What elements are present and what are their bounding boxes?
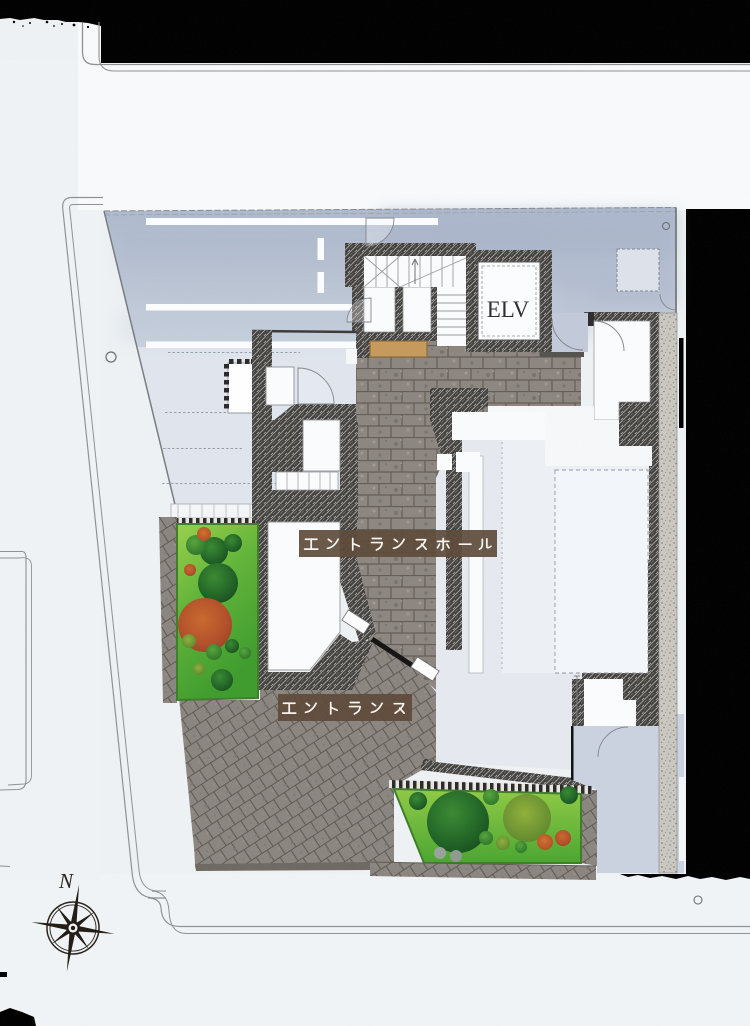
svg-text:ELV: ELV (487, 297, 530, 322)
svg-text:N: N (58, 869, 74, 893)
